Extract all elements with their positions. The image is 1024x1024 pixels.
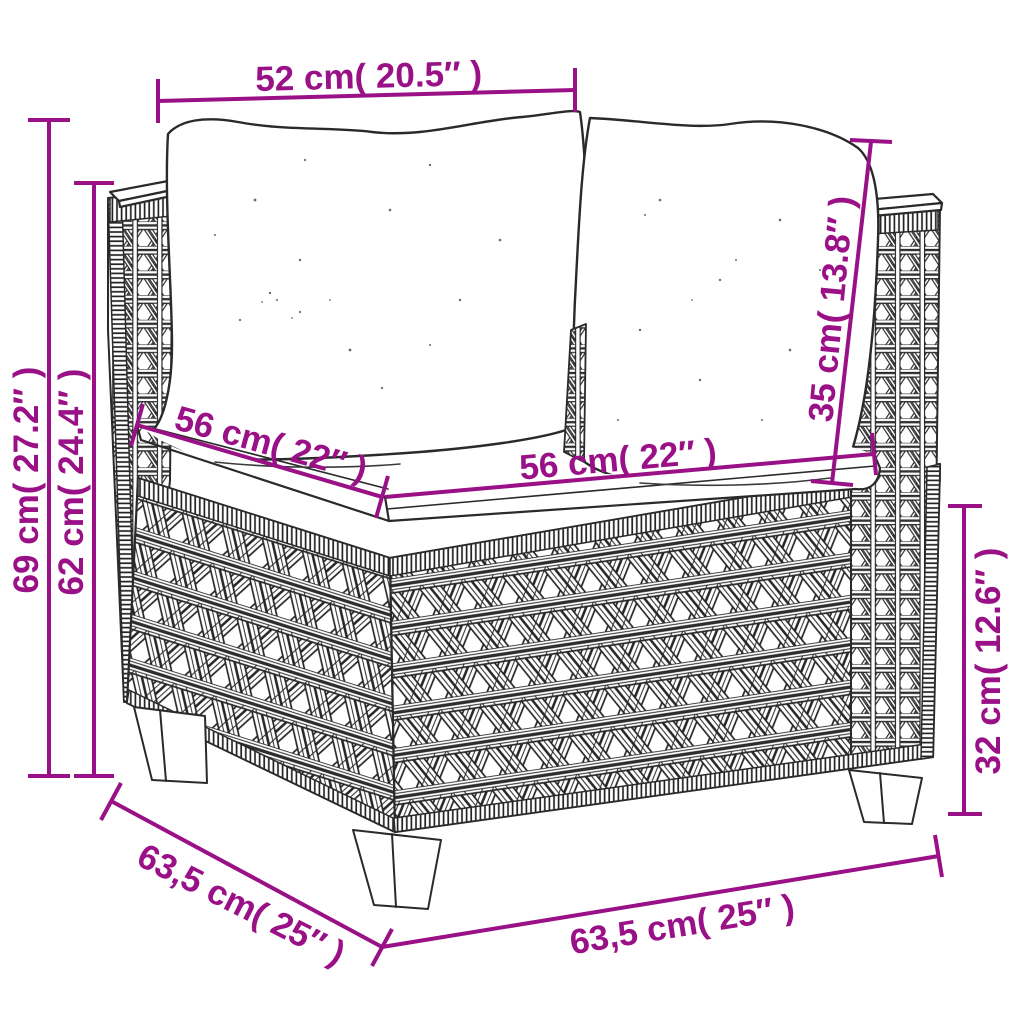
svg-text:69 cm( 27.2″ ): 69 cm( 27.2″ ) [7,367,46,594]
svg-text:32 cm( 12.6″ ): 32 cm( 12.6″ ) [969,548,1008,775]
svg-text:62 cm( 24.4″ ): 62 cm( 24.4″ ) [52,369,91,596]
svg-text:52 cm( 20.5″ ): 52 cm( 20.5″ ) [255,54,483,99]
